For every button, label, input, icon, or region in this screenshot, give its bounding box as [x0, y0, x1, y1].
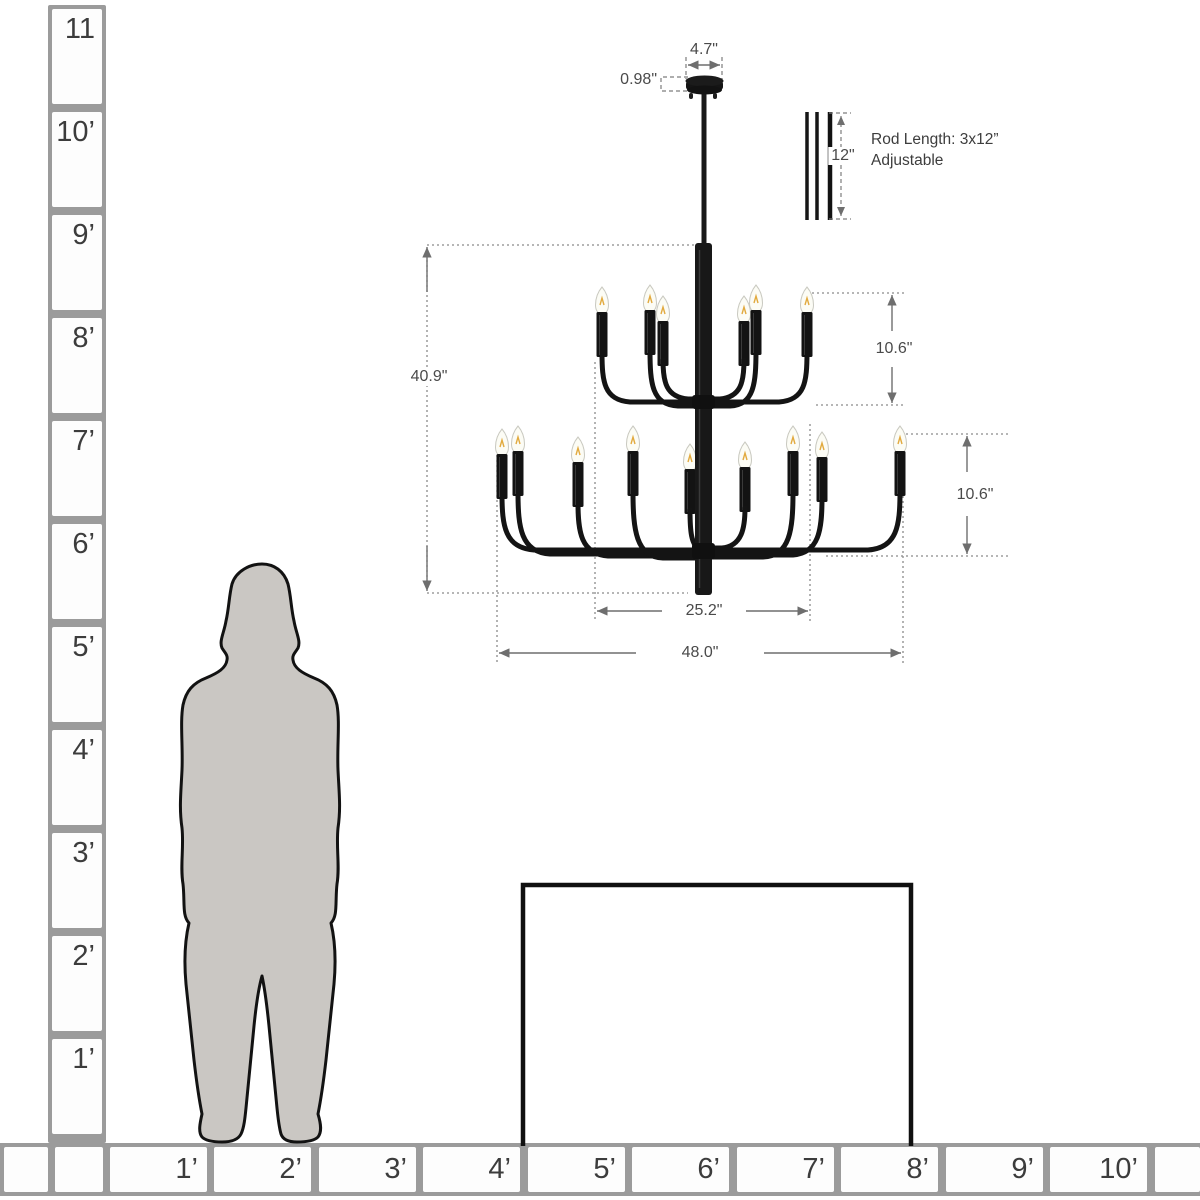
rod-kit-graphic: [807, 112, 830, 220]
size-comparison-diagram: 11 10’ 9’ 8’ 7’ 6’ 5’ 4’ 3’ 2’ 1’ 1’ 2’ …: [0, 0, 1200, 1200]
candle: [787, 426, 800, 496]
tier1-height-label: 10.6": [873, 340, 916, 358]
down-rod: [702, 88, 707, 245]
candle: [572, 437, 585, 507]
fixture-height-label: 40.9": [408, 368, 451, 386]
human-silhouette: [180, 564, 339, 1142]
candle: [750, 285, 763, 355]
table-outline: [523, 885, 911, 1146]
candle: [738, 296, 751, 366]
rod-note-line1: Rod Length: 3x12”: [871, 129, 999, 150]
candle: [657, 296, 670, 366]
candle: [816, 432, 829, 502]
candle: [894, 426, 907, 496]
dim-fixture-height: [427, 245, 697, 593]
tier2-height-label: 10.6": [954, 486, 997, 504]
center-column: [692, 243, 715, 595]
rod-length-note: Rod Length: 3x12” Adjustable: [871, 129, 999, 171]
candle: [627, 426, 640, 496]
candle: [496, 429, 509, 499]
rod-segment-label: 12": [828, 147, 857, 165]
candle: [684, 444, 697, 514]
candle: [801, 287, 814, 357]
dim-rod-length: [829, 113, 851, 219]
dim-canopy-height: [661, 77, 688, 91]
candle: [512, 426, 525, 496]
candle: [596, 287, 609, 357]
candle: [739, 442, 752, 512]
fixture-width-label: 48.0": [679, 644, 722, 662]
candle: [644, 285, 657, 355]
rod-note-line2: Adjustable: [871, 150, 999, 171]
diagram-canvas: [0, 0, 1200, 1200]
canopy-height-label: 0.98": [620, 71, 657, 89]
canopy-width-label: 4.7": [690, 41, 718, 59]
tier1-width-label: 25.2": [683, 602, 726, 620]
